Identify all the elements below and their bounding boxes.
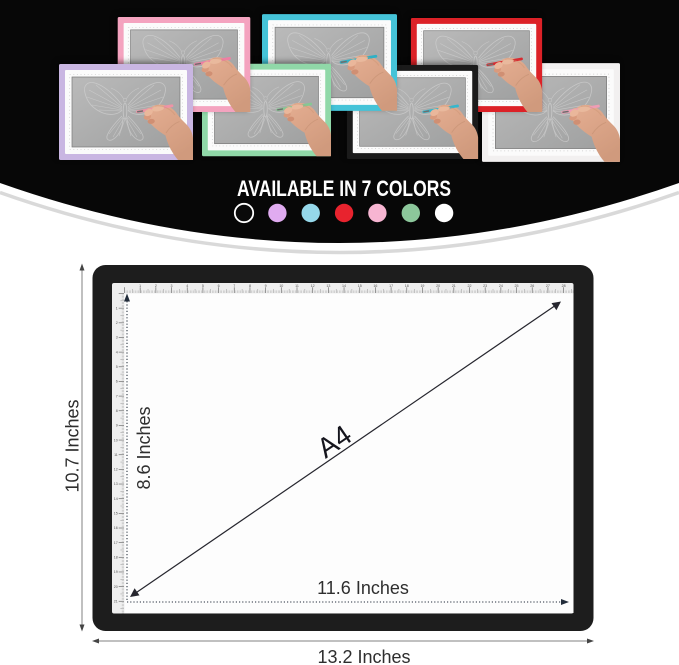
svg-text:24: 24 xyxy=(499,284,503,288)
svg-text:11: 11 xyxy=(295,284,299,288)
svg-text:14: 14 xyxy=(114,497,118,501)
svg-text:AVAILABLE IN 7 COLORS: AVAILABLE IN 7 COLORS xyxy=(237,176,451,201)
svg-text:4: 4 xyxy=(116,350,118,354)
svg-text:2: 2 xyxy=(116,321,118,325)
svg-text:8: 8 xyxy=(116,409,118,413)
svg-text:18: 18 xyxy=(114,556,118,560)
svg-text:1: 1 xyxy=(139,284,141,288)
svg-text:25: 25 xyxy=(515,284,519,288)
svg-text:8.6 Inches: 8.6 Inches xyxy=(134,406,154,489)
svg-text:12: 12 xyxy=(114,468,118,472)
svg-text:11: 11 xyxy=(114,453,118,457)
svg-text:16: 16 xyxy=(373,284,377,288)
svg-text:20: 20 xyxy=(436,284,440,288)
svg-text:16: 16 xyxy=(114,526,118,530)
svg-text:14: 14 xyxy=(342,284,346,288)
svg-text:10.7 Inches: 10.7 Inches xyxy=(63,399,83,492)
svg-text:7: 7 xyxy=(116,394,118,398)
svg-text:12: 12 xyxy=(311,284,315,288)
svg-text:3: 3 xyxy=(116,336,118,340)
svg-text:21: 21 xyxy=(114,599,118,603)
svg-text:9: 9 xyxy=(265,284,267,288)
svg-text:27: 27 xyxy=(546,284,550,288)
svg-text:15: 15 xyxy=(114,512,118,516)
svg-text:22: 22 xyxy=(468,284,472,288)
svg-text:8: 8 xyxy=(249,284,251,288)
svg-text:18: 18 xyxy=(405,284,409,288)
svg-text:5: 5 xyxy=(116,365,118,369)
svg-text:1: 1 xyxy=(116,306,118,310)
svg-text:11.6 Inches: 11.6 Inches xyxy=(317,578,409,598)
svg-text:13: 13 xyxy=(326,284,330,288)
svg-text:2: 2 xyxy=(155,284,157,288)
svg-text:4: 4 xyxy=(186,284,188,288)
svg-text:9: 9 xyxy=(116,424,118,428)
svg-text:6: 6 xyxy=(218,284,220,288)
svg-text:10: 10 xyxy=(279,284,283,288)
svg-text:28: 28 xyxy=(562,284,566,288)
svg-text:3: 3 xyxy=(171,284,173,288)
svg-text:13: 13 xyxy=(114,482,118,486)
svg-text:19: 19 xyxy=(114,570,118,574)
svg-text:13.2 Inches: 13.2 Inches xyxy=(317,647,410,665)
svg-text:17: 17 xyxy=(114,541,118,545)
svg-text:15: 15 xyxy=(358,284,362,288)
svg-text:7: 7 xyxy=(233,284,235,288)
svg-text:6: 6 xyxy=(116,380,118,384)
svg-text:23: 23 xyxy=(483,284,487,288)
svg-text:5: 5 xyxy=(202,284,204,288)
svg-text:21: 21 xyxy=(452,284,456,288)
svg-text:26: 26 xyxy=(530,284,534,288)
svg-text:10: 10 xyxy=(114,438,118,442)
svg-text:20: 20 xyxy=(114,585,118,589)
svg-text:19: 19 xyxy=(420,284,424,288)
svg-text:17: 17 xyxy=(389,284,393,288)
